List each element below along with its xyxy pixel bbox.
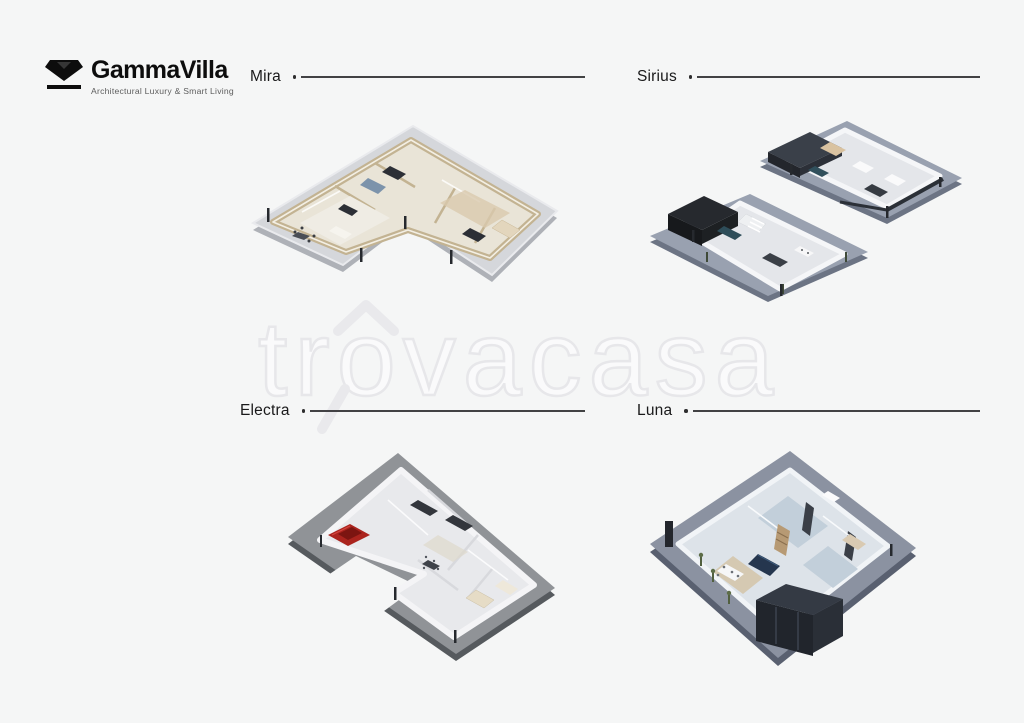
sirius-lower-floor bbox=[650, 194, 868, 302]
plan-header-electra: Electra bbox=[240, 402, 585, 420]
luna-floorplan-render bbox=[638, 436, 953, 681]
electra-floorplan-render bbox=[268, 440, 583, 675]
brand-tagline: Architectural Luxury & Smart Living bbox=[91, 86, 234, 96]
leader-line bbox=[684, 409, 980, 413]
leader-line bbox=[302, 409, 585, 413]
brand-name: GammaVilla bbox=[91, 57, 234, 83]
leader-rule bbox=[301, 76, 585, 77]
leader-dot bbox=[689, 75, 693, 79]
plan-label-luna: Luna bbox=[637, 402, 672, 420]
leader-rule bbox=[697, 76, 980, 77]
leader-rule bbox=[310, 410, 585, 411]
leader-dot bbox=[293, 75, 297, 79]
plan-label-electra: Electra bbox=[240, 402, 290, 420]
plan-header-luna: Luna bbox=[637, 402, 980, 420]
mira-walls bbox=[273, 140, 538, 258]
sirius-floorplan-render bbox=[640, 106, 985, 341]
plan-label-sirius: Sirius bbox=[637, 68, 677, 86]
leader-dot bbox=[684, 409, 688, 413]
logo-text-block: GammaVilla Architectural Luxury & Smart … bbox=[91, 57, 234, 96]
plan-label-mira: Mira bbox=[250, 68, 281, 86]
leader-rule bbox=[693, 410, 980, 411]
leader-line bbox=[293, 75, 585, 79]
mira-floorplan-render bbox=[240, 108, 570, 293]
logo: GammaVilla Architectural Luxury & Smart … bbox=[45, 57, 234, 96]
plan-header-mira: Mira bbox=[250, 68, 585, 86]
leader-line bbox=[689, 75, 980, 79]
leader-dot bbox=[302, 409, 306, 413]
brochure-page: GammaVilla Architectural Luxury & Smart … bbox=[0, 0, 1024, 723]
diamond-gem-icon bbox=[45, 59, 83, 91]
plan-header-sirius: Sirius bbox=[637, 68, 980, 86]
sirius-upper-floor bbox=[760, 121, 962, 224]
